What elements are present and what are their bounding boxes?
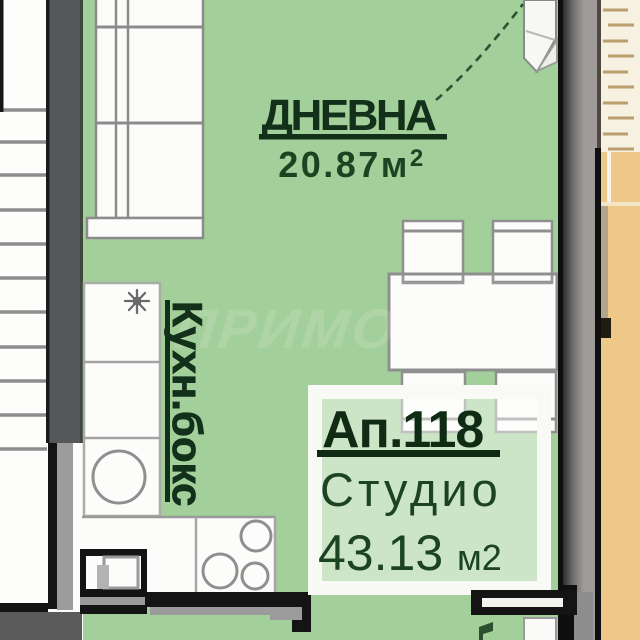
svg-text:ДНЕВНА: ДНЕВНА <box>262 91 437 140</box>
svg-text:Кухн.бокс: Кухн.бокс <box>164 301 211 506</box>
svg-text:Студио: Студио <box>320 463 502 516</box>
svg-text:20.87м2: 20.87м2 <box>278 144 426 185</box>
